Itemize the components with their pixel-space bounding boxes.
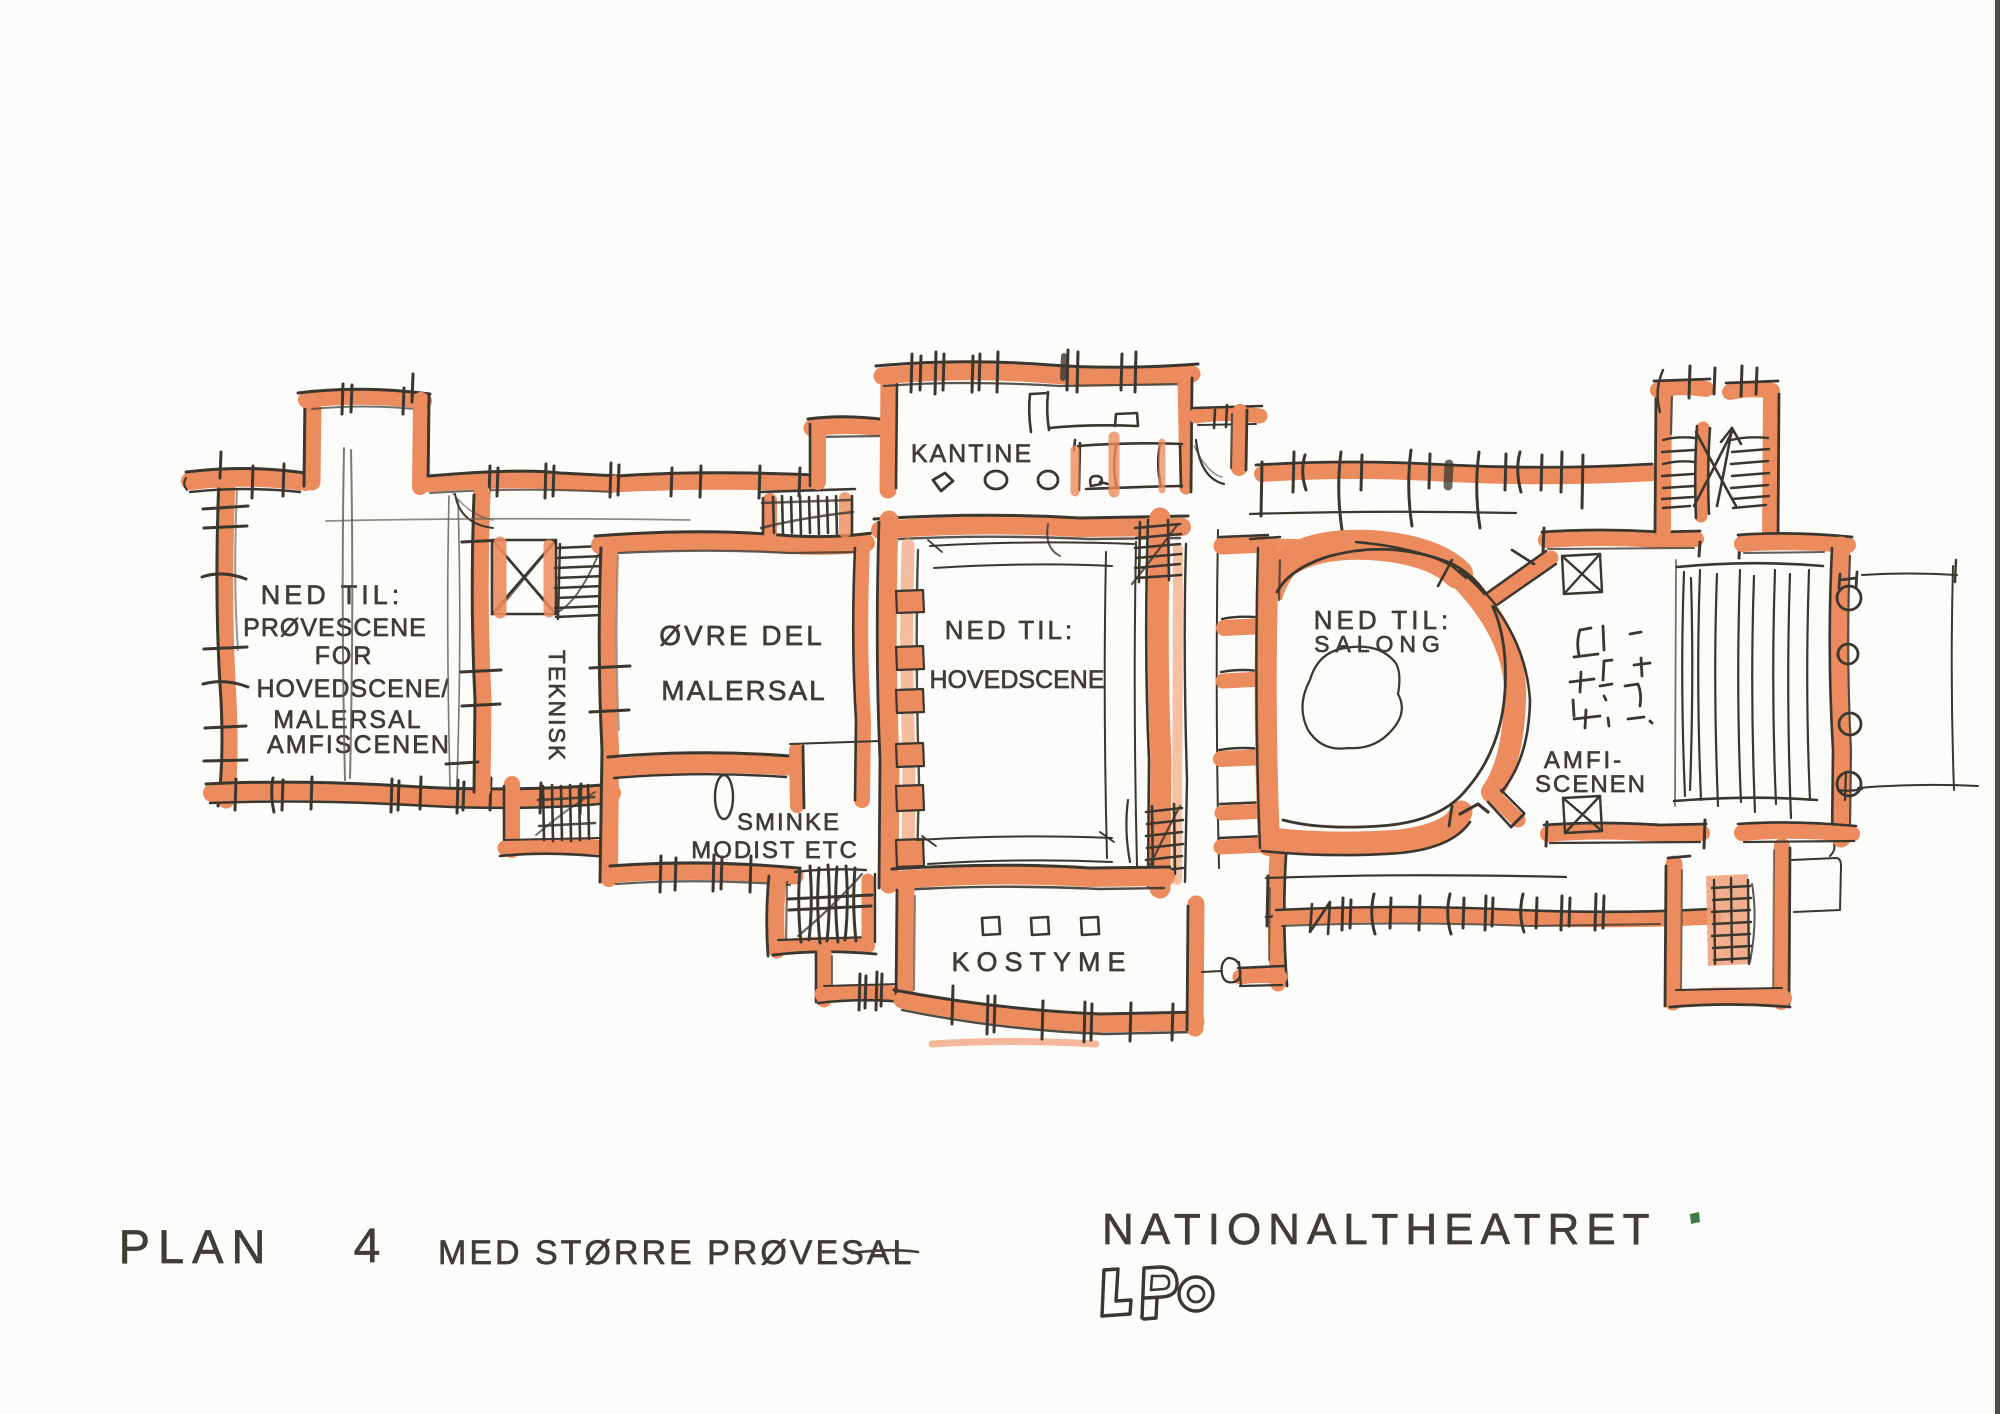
svg-text:KANTINE: KANTINE	[911, 440, 1033, 468]
svg-text:SALONG: SALONG	[1314, 631, 1446, 657]
svg-text:NED TIL:: NED TIL:	[261, 580, 404, 610]
svg-text:SCENEN: SCENEN	[1535, 771, 1647, 798]
svg-text:MALERSAL: MALERSAL	[273, 706, 422, 734]
svg-text:KOSTYME: KOSTYME	[951, 947, 1132, 977]
svg-text:SMINKE: SMINKE	[737, 809, 841, 836]
svg-text:MODIST ETC: MODIST ETC	[691, 837, 859, 864]
svg-text:AMFI-: AMFI-	[1544, 747, 1624, 774]
svg-text:HOVEDSCENE/: HOVEDSCENE/	[257, 675, 450, 703]
svg-text:NED TIL:: NED TIL:	[945, 615, 1075, 645]
svg-text:HOVEDSCENE: HOVEDSCENE	[929, 666, 1104, 694]
svg-text:PLAN: PLAN	[119, 1220, 274, 1273]
svg-text:AMFISCENEN: AMFISCENEN	[267, 731, 451, 759]
svg-text:MED STØRRE PRØVESAL: MED STØRRE PRØVESAL	[438, 1234, 914, 1272]
svg-text:ØVRE DEL: ØVRE DEL	[659, 620, 825, 651]
svg-text:TEKNISK: TEKNISK	[544, 650, 570, 762]
svg-text:MALERSAL: MALERSAL	[661, 675, 826, 706]
svg-text:4: 4	[354, 1220, 381, 1273]
svg-text:NATIONALTHEATRET: NATIONALTHEATRET	[1102, 1205, 1656, 1254]
svg-text:PRØVESCENE: PRØVESCENE	[243, 614, 427, 642]
